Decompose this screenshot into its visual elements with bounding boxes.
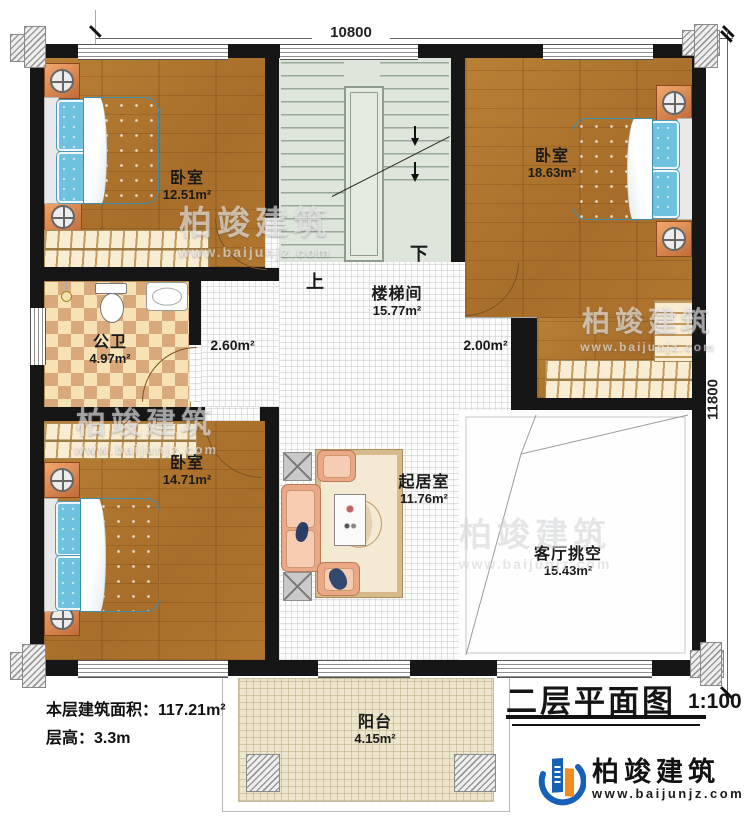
stair-direction-arrow <box>411 138 419 146</box>
plan-scale: 1:100 <box>688 690 742 714</box>
lamp-icon <box>50 468 74 492</box>
dimension-height-label: 11800 <box>705 359 722 441</box>
wall <box>30 267 265 281</box>
stair-down-label: 下 <box>410 240 428 266</box>
wardrobe <box>44 230 209 269</box>
room-area: 4.97m² <box>65 352 155 367</box>
wall <box>537 398 692 410</box>
lamp-icon <box>662 227 686 251</box>
extension-line <box>95 10 96 44</box>
sofa-cushion <box>323 455 351 478</box>
wardrobe <box>545 360 694 400</box>
sink-icon <box>146 282 188 311</box>
room-name: 客厅挑空 <box>518 546 618 564</box>
side-table <box>283 452 312 481</box>
room-name: 卧室 <box>507 148 597 166</box>
room-name: 公卫 <box>65 334 155 352</box>
void-diagonal-lines <box>459 410 692 660</box>
lamp-icon <box>51 205 75 229</box>
window <box>280 44 418 60</box>
wall <box>265 421 279 660</box>
corner-hatch <box>22 644 46 688</box>
floor-area-info: 本层建筑面积：117.21m² <box>46 696 226 720</box>
window <box>78 44 228 60</box>
sink-basin <box>152 287 182 306</box>
wall <box>189 281 201 345</box>
dimension-width-label: 10800 <box>312 24 390 41</box>
brand-logo <box>534 754 586 810</box>
nightstand <box>656 85 692 121</box>
bed-pillow <box>651 121 679 169</box>
floor-area-value: 117.21m² <box>158 702 226 719</box>
sliding-door <box>318 660 410 678</box>
wall <box>265 58 279 218</box>
bed-mattress <box>80 498 160 612</box>
room-name: 起居室 <box>379 474 469 492</box>
wall <box>265 268 279 281</box>
brand-name: 柏竣建筑 <box>592 758 744 786</box>
doorway-floor <box>205 407 260 421</box>
wardrobe <box>44 423 197 459</box>
floor-height-label: 层高： <box>46 730 94 747</box>
coffee-table <box>334 494 366 546</box>
bed-headboard <box>677 118 693 220</box>
corner-hatch <box>24 26 46 68</box>
toilet-icon <box>100 293 124 323</box>
wall <box>692 44 706 676</box>
wall <box>30 407 205 421</box>
room-area: 14.71m² <box>142 473 232 488</box>
side-table <box>283 572 312 601</box>
room-name: 卧室 <box>142 455 232 473</box>
window <box>30 308 46 365</box>
room-area: 4.15m² <box>330 732 420 747</box>
wall <box>260 407 279 421</box>
title-underline-thin <box>512 724 700 726</box>
wall <box>451 58 465 262</box>
closet-shelves <box>654 300 694 362</box>
floor-height-info: 层高：3.3m <box>46 724 130 748</box>
wall <box>511 318 537 410</box>
light-cord <box>66 281 67 291</box>
room-area: 15.43m² <box>518 564 618 579</box>
room-area: 11.76m² <box>379 492 469 507</box>
room-area: 15.77m² <box>352 304 442 319</box>
hall-right-area-label: 2.00m² <box>448 337 523 353</box>
dimension-line-top <box>95 38 733 39</box>
hall-left-area-label: 2.60m² <box>195 337 270 353</box>
room-label-void: 客厅挑空 15.43m² <box>518 546 618 579</box>
nightstand <box>44 462 80 498</box>
room-label-bedroom-top-right: 卧室 18.63m² <box>507 148 597 181</box>
bed-sheet <box>80 498 106 612</box>
dimension-line-right <box>727 30 728 698</box>
floor-plan-canvas: 10800 11800 <box>0 0 750 823</box>
corner-hatch <box>694 24 718 68</box>
stair-direction-arrow <box>414 126 416 138</box>
floor-height-value: 3.3m <box>94 730 130 747</box>
room-label-stairwell: 楼梯间 15.77m² <box>352 286 442 319</box>
light-fixture-icon <box>61 291 72 302</box>
bed-pillow <box>651 170 679 218</box>
armchair <box>317 450 356 482</box>
balcony-corner-hatch <box>246 754 280 792</box>
bed-sheet <box>83 97 107 204</box>
stair-direction-arrow <box>414 162 416 174</box>
room-name: 阳台 <box>330 714 420 732</box>
room-name: 卧室 <box>142 170 232 188</box>
stair-direction-arrow <box>411 174 419 182</box>
brand-text-block: 柏竣建筑 www.baijunjz.com <box>592 758 744 801</box>
room-area: 12.51m² <box>142 188 232 203</box>
floor-area-label: 本层建筑面积： <box>46 702 158 719</box>
balcony-corner-hatch <box>454 754 496 792</box>
wall <box>228 660 318 676</box>
nightstand <box>44 63 80 99</box>
room-label-bedroom-top-left: 卧室 12.51m² <box>142 170 232 203</box>
wall <box>410 660 497 676</box>
stair-core <box>344 86 384 262</box>
room-area: 18.63m² <box>507 166 597 181</box>
window <box>543 44 653 60</box>
void-area <box>459 410 692 660</box>
nightstand <box>656 221 692 257</box>
bed-sheet <box>627 118 653 220</box>
room-label-bathroom: 公卫 4.97m² <box>65 334 155 367</box>
stair-up-label: 上 <box>306 268 324 294</box>
room-label-balcony: 阳台 4.15m² <box>330 714 420 747</box>
window <box>78 660 228 678</box>
brand-logo-icon <box>534 754 586 810</box>
doorway-floor <box>265 218 279 268</box>
title-underline <box>506 715 706 719</box>
room-label-bedroom-bottom-left: 卧室 14.71m² <box>142 455 232 488</box>
lamp-icon <box>50 69 74 93</box>
room-name: 楼梯间 <box>352 286 442 304</box>
room-label-living-room: 起居室 11.76m² <box>379 474 469 507</box>
brand-website: www.baijunjz.com <box>592 786 744 801</box>
wall <box>228 44 280 58</box>
wall <box>418 44 543 58</box>
lamp-icon <box>662 91 686 115</box>
stair-treads-left <box>281 62 344 258</box>
